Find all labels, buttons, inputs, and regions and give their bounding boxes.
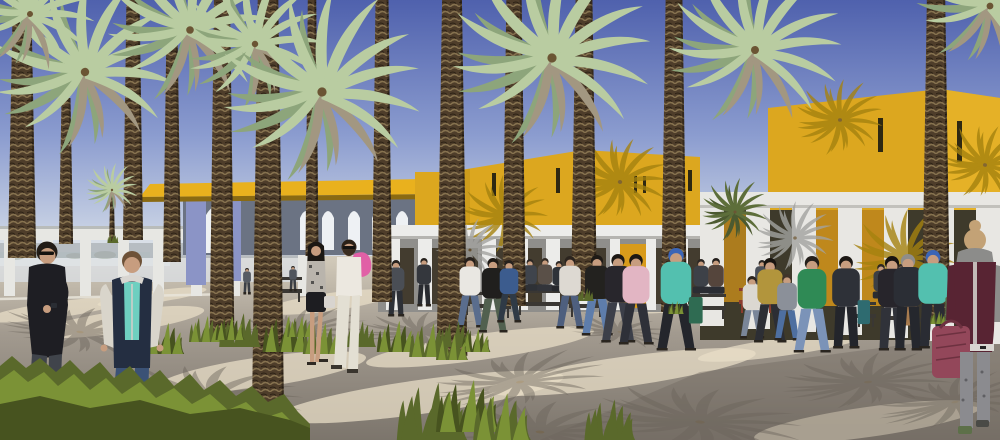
blue-pier xyxy=(186,197,206,285)
bag xyxy=(858,300,870,324)
architectural-rendering xyxy=(0,0,1000,440)
bag xyxy=(689,297,703,324)
wristwatch xyxy=(51,303,57,308)
handbag xyxy=(324,296,335,308)
